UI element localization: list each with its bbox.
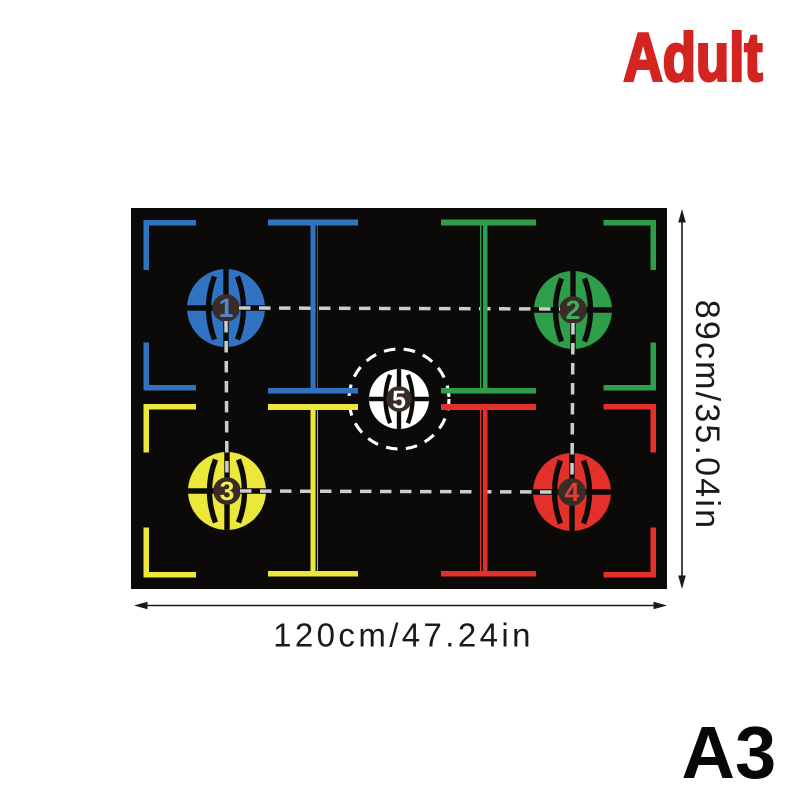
svg-text:Adult: Adult: [624, 20, 763, 96]
svg-text:89cm/35.04in: 89cm/35.04in: [688, 300, 726, 531]
svg-text:A3: A3: [682, 711, 777, 794]
svg-text:120cm/47.24in: 120cm/47.24in: [273, 617, 534, 654]
